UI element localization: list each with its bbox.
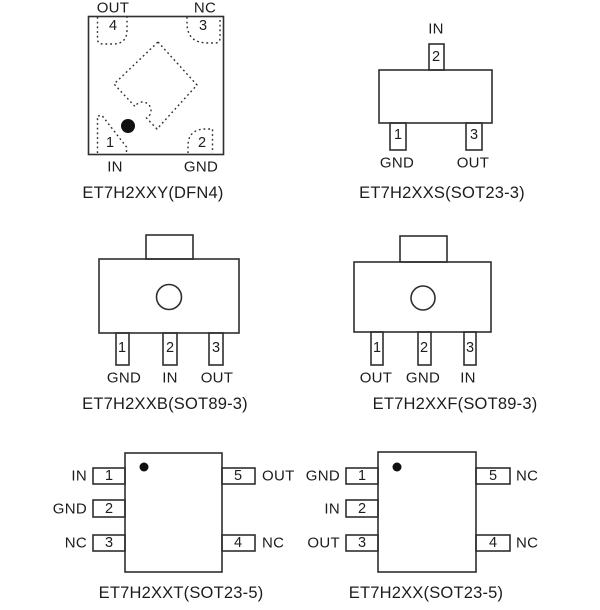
sot23-5t-pin2-label: GND — [53, 502, 87, 517]
sot23-5t-pin1-indicator-dot — [140, 463, 149, 472]
sot89-3b-pin2-label: IN — [162, 371, 178, 386]
sot23-3-pin3-number: 3 — [470, 128, 478, 143]
dfn4-pin1-number: 1 — [106, 136, 114, 151]
sot89-3b-pin1-label: GND — [107, 371, 141, 386]
package-outline-layer — [0, 0, 600, 610]
sot89-3f-tab — [400, 236, 447, 262]
sot23-5t-package-drawing — [93, 453, 255, 572]
sot89-3b-caption: ET7H2XXB(SOT89-3) — [82, 396, 248, 413]
dfn4-pin3-number: 3 — [199, 19, 207, 34]
sot23-5-caption: ET7H2XX(SOT23-5) — [349, 585, 504, 602]
sot23-5t-pin3-label: NC — [65, 536, 87, 551]
dfn4-pin1-label: IN — [107, 160, 123, 175]
sot23-5t-pin1-number: 1 — [105, 469, 113, 484]
sot23-3-pin3-label: OUT — [457, 156, 490, 171]
sot23-5-body — [378, 452, 476, 572]
sot23-5-pin2-label: IN — [324, 502, 340, 517]
sot23-5-pin5-number: 5 — [489, 469, 497, 484]
sot89-3b-pin1-number: 1 — [118, 341, 126, 356]
sot23-5t-pin3-number: 3 — [105, 536, 113, 551]
sot89-3b-tab — [146, 235, 193, 259]
sot23-5t-pin5-label: OUT — [262, 469, 295, 484]
sot89-3f-pin2-label: GND — [406, 371, 440, 386]
sot23-5-pin1-label: GND — [306, 469, 340, 484]
sot23-5t-pin4-label: NC — [262, 536, 284, 551]
sot23-5t-caption: ET7H2XXT(SOT23-5) — [99, 585, 264, 602]
sot23-5-pin5-label: NC — [516, 469, 538, 484]
sot23-3-pin2-number: 2 — [432, 50, 440, 65]
sot89-3f-pin3-label: IN — [460, 371, 476, 386]
sot23-5t-pin1-label: IN — [71, 469, 87, 484]
sot23-5t-body — [125, 453, 222, 572]
sot89-3f-pin3-number: 3 — [466, 341, 474, 356]
dfn4-caption: ET7H2XXY(DFN4) — [82, 185, 223, 202]
sot23-3-pin2-label: IN — [428, 22, 444, 37]
sot23-5t-pin2-number: 2 — [105, 502, 113, 517]
sot23-5t-pin4-number: 4 — [234, 536, 242, 551]
sot89-3f-caption: ET7H2XXF(SOT89-3) — [373, 396, 538, 413]
sot23-3-body — [379, 70, 492, 123]
sot23-5-pin4-number: 4 — [489, 536, 497, 551]
sot23-3-caption: ET7H2XXS(SOT23-3) — [359, 185, 525, 202]
sot23-5t-pin5-number: 5 — [234, 469, 242, 484]
dfn4-pin2-label: GND — [184, 160, 218, 175]
dfn4-pin3-label: NC — [194, 1, 216, 16]
sot89-3b-pin2-number: 2 — [166, 341, 174, 356]
sot23-5-pin1-number: 1 — [358, 469, 366, 484]
sot23-5-pin1-indicator-dot — [393, 463, 402, 472]
sot89-3b-body-circle — [157, 285, 182, 310]
sot23-3-pin1-number: 1 — [394, 128, 402, 143]
dfn4-pin4-label: OUT — [97, 1, 130, 16]
sot23-5-pin4-label: NC — [516, 536, 538, 551]
sot89-3f-body — [354, 262, 491, 332]
sot23-5-pin2-number: 2 — [358, 502, 366, 517]
dfn4-pin1-indicator-dot — [121, 119, 135, 133]
sot89-3f-pin1-label: OUT — [360, 371, 393, 386]
sot89-3b-pin3-number: 3 — [212, 341, 220, 356]
dfn4-pin2-number: 2 — [198, 136, 206, 151]
sot89-3f-body-circle — [411, 286, 435, 310]
sot89-3b-pin3-label: OUT — [201, 371, 234, 386]
dfn4-exposed-pad-outline — [114, 42, 197, 129]
sot23-3-pin1-label: GND — [380, 156, 414, 171]
sot89-3b-body — [99, 259, 239, 333]
pinout-diagram-canvas: OUT NC 4 3 1 2 IN GND ET7H2XXY(DFN4) IN … — [0, 0, 600, 610]
sot89-3f-pin2-number: 2 — [420, 341, 428, 356]
sot23-5-pin3-number: 3 — [358, 536, 366, 551]
sot89-3f-pin1-number: 1 — [373, 341, 381, 356]
sot23-5-pin3-label: OUT — [307, 536, 340, 551]
sot23-5-package-drawing — [346, 452, 510, 572]
dfn4-pin4-number: 4 — [109, 19, 117, 34]
